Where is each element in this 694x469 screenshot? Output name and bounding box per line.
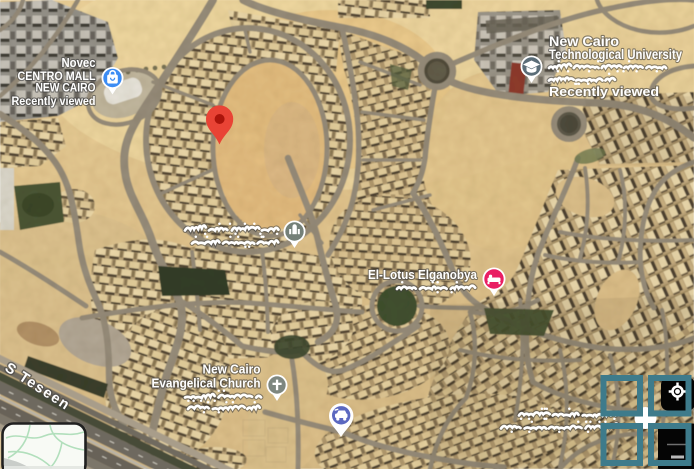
svg-text:El-Lotus Elganobya: El-Lotus Elganobya: [368, 267, 478, 282]
svg-text:Recently viewed: Recently viewed: [549, 84, 659, 99]
svg-text:Novec: Novec: [62, 56, 96, 70]
svg-text:Evangelical Church: Evangelical Church: [152, 376, 261, 391]
svg-text:Recently viewed: Recently viewed: [12, 94, 96, 108]
svg-text:Technological University: Technological University: [549, 47, 682, 62]
svg-text:NEW CAIRO: NEW CAIRO: [36, 81, 96, 95]
svg-text:New Cairo: New Cairo: [203, 362, 261, 377]
